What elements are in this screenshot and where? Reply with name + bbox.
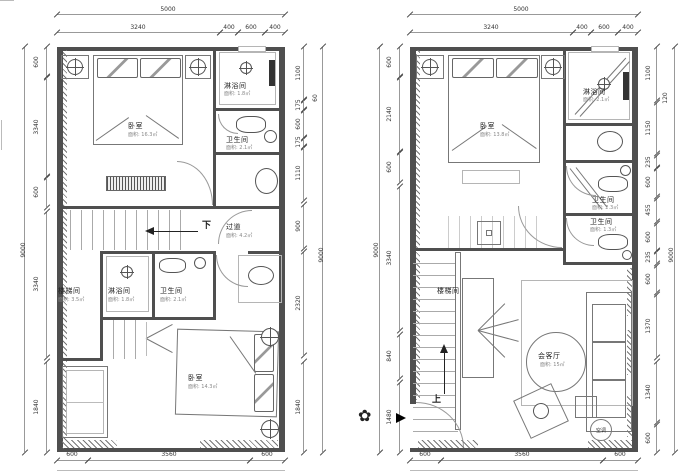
dim-label: 5000: [151, 6, 185, 14]
sofa-cushion: [592, 304, 626, 342]
dim-label: 600: [408, 451, 442, 459]
room-label-shower: 淋浴间: [108, 287, 131, 295]
floorplan-canvas: 5000 3240 400 600 400 600 3560 600 600 3…: [0, 0, 694, 473]
dim-line: [238, 32, 265, 33]
wall: [100, 251, 216, 254]
dim-line: [399, 187, 400, 330]
ceiling-lamp-icon: [190, 59, 206, 75]
dim-label: 5000: [504, 6, 538, 14]
dim-line: [591, 32, 618, 33]
room-label-shower: 淋浴间: [224, 82, 247, 90]
dim-line: [46, 177, 47, 207]
wall-hatch: [627, 268, 632, 316]
dim-line: [303, 205, 304, 248]
dim-line: [656, 224, 657, 251]
pillow: [140, 58, 181, 78]
dim-line: [656, 362, 657, 422]
dim-label: 1100: [645, 56, 653, 90]
room-area: 面积: 2.1㎡: [226, 145, 252, 151]
dim-line: [441, 460, 603, 461]
dim-label: 1480: [386, 400, 394, 434]
dim-label: 2140: [386, 97, 394, 131]
door-arc: [218, 114, 238, 134]
room-label-bath: 卫生间: [592, 196, 615, 204]
dim-line: [250, 460, 285, 461]
room-area: 面积: 1.8㎡: [224, 91, 250, 97]
label-up: 上: [432, 396, 442, 404]
toilet: [159, 258, 186, 273]
wall: [410, 448, 638, 452]
dim-line: [303, 47, 304, 100]
crop-mark: [1, 120, 2, 150]
dim-line: [410, 470, 638, 471]
dim-line: [656, 168, 657, 196]
dim-label: 900: [295, 209, 303, 243]
toilet: [598, 176, 628, 192]
dim-label: 3340: [33, 110, 41, 144]
dim-line: [656, 47, 657, 100]
dim-label: 600: [645, 262, 653, 296]
wall-hatch: [200, 440, 278, 448]
ceiling-lamp-icon: [545, 59, 561, 75]
dim-label: 9000: [20, 233, 28, 267]
ceiling-lamp-icon: [422, 59, 438, 75]
winder-line: [146, 338, 173, 353]
dim-label: 600: [250, 451, 284, 459]
pillow: [97, 58, 138, 78]
dim-line: [399, 152, 400, 182]
shower-room-outline: [219, 52, 276, 105]
side-table: [575, 396, 597, 418]
winder-edge: [146, 322, 147, 356]
dim-label: 600: [33, 175, 41, 209]
wall: [213, 47, 216, 209]
door-arc: [216, 255, 248, 287]
dim-label: 1150: [645, 111, 653, 145]
wall: [57, 358, 102, 361]
dim-line: [46, 212, 47, 357]
toilet: [236, 116, 266, 133]
armchair-cushion: [530, 400, 551, 421]
dim-label: 60: [312, 81, 320, 115]
dim-line: [303, 147, 304, 200]
room-label-bedroom: 卧室: [480, 122, 495, 130]
dim-line: [303, 362, 304, 452]
dim-label: 1340: [645, 375, 653, 409]
dim-line: [303, 252, 304, 355]
dim-label: 840: [386, 339, 394, 373]
stair-rail: [455, 252, 461, 430]
dim-line: [656, 425, 657, 452]
ceiling-lamp-icon: [261, 328, 279, 346]
basin: [264, 130, 277, 143]
room-area: 面积: 2.3㎡: [592, 205, 618, 211]
dim-line: [656, 295, 657, 357]
wall: [213, 108, 285, 111]
shower-head-icon: [240, 62, 252, 74]
dim-line: [410, 32, 573, 33]
wall: [248, 251, 285, 254]
entrance-plant-icon: ✿: [358, 406, 371, 425]
wall: [563, 160, 635, 163]
dim-label: 9000: [373, 233, 381, 267]
dim-line: [656, 199, 657, 221]
dim-line: [618, 32, 638, 33]
sofa-cushion: [592, 380, 626, 418]
dim-line: [410, 14, 638, 15]
dim-label: 9000: [318, 238, 326, 272]
ac-unit: 空调: [590, 419, 612, 441]
wall-hatch: [588, 440, 632, 448]
stair-treads: [70, 210, 188, 250]
winder-line: [146, 324, 173, 339]
dim-line: [303, 110, 304, 138]
dim-label: 3340: [386, 241, 394, 275]
room-area: 面积: 2.1㎡: [160, 297, 186, 303]
dim-label: 175: [295, 125, 303, 159]
basin-oval: [255, 168, 278, 194]
dim-line: [57, 470, 285, 471]
direction-arrow: [145, 227, 154, 235]
dim-label: 1110: [295, 156, 303, 190]
room-label-stair: 楼梯间: [58, 287, 81, 295]
dim-line: [656, 251, 657, 263]
dim-line: [57, 14, 285, 15]
entrance-arrow-icon: [396, 413, 406, 423]
dim-label: 3560: [152, 451, 186, 459]
dim-label: 600: [55, 451, 89, 459]
ceiling-lamp-icon: [67, 59, 83, 75]
room-label-bedroom: 卧室: [128, 122, 143, 130]
dim-line: [603, 460, 638, 461]
shower-niche: [623, 72, 629, 100]
wall: [213, 251, 216, 319]
basin: [194, 257, 206, 269]
winder-stairs: [113, 320, 145, 359]
basin-oval: [248, 266, 274, 285]
bed-bench: [462, 170, 520, 184]
wall: [410, 248, 566, 251]
room-area: 面积: 13.8㎡: [480, 132, 509, 138]
dim-label: 600: [645, 421, 653, 455]
dim-label: 1840: [295, 390, 303, 424]
door-arc: [218, 210, 252, 244]
dim-line: [46, 77, 47, 177]
room-area: 面积: 2.1㎡: [583, 97, 609, 103]
dim-label: 1370: [645, 309, 653, 343]
room-area: 面积: 3.5㎡: [58, 297, 84, 303]
ceiling-lamp-icon: [261, 420, 279, 438]
room-label-shower: 淋浴间: [583, 88, 606, 96]
direction-arrow: [440, 344, 448, 353]
room-area: 面积: 15㎡: [540, 362, 565, 368]
landing-table-inner: [486, 230, 492, 236]
pillow: [452, 58, 494, 78]
dim-label: 600: [386, 45, 394, 79]
door-arc: [566, 218, 594, 246]
room-label-bedroom: 卧室: [188, 374, 203, 382]
dim-label: 9000: [668, 238, 676, 272]
dim-label: 400: [258, 24, 292, 32]
dim-label: 400: [611, 24, 645, 32]
direction-line: [444, 352, 445, 394]
room-label-bath: 卫生间: [160, 287, 183, 295]
basin-oval: [597, 131, 623, 152]
dim-label: 600: [386, 150, 394, 184]
radiator: [106, 176, 166, 191]
dim-line: [265, 32, 285, 33]
dim-label: 1840: [33, 390, 41, 424]
room-label-stair: 楼梯间: [437, 287, 460, 295]
wall: [563, 47, 566, 265]
room-label-living: 会客厅: [538, 352, 561, 360]
dim-label: 3340: [33, 267, 41, 301]
room-area: 面积: 16.3㎡: [128, 132, 157, 138]
dim-label: 2320: [295, 286, 303, 320]
toilet: [598, 234, 628, 250]
dim-line: [46, 47, 47, 77]
direction-line: [152, 231, 198, 232]
wall: [100, 251, 103, 361]
wall: [563, 262, 635, 265]
dim-label: 120: [662, 81, 670, 115]
label-down: 下: [202, 222, 212, 230]
shower-niche: [269, 60, 275, 86]
wardrobe-shelf: [66, 402, 104, 403]
wall-hatch: [62, 440, 117, 448]
dim-label: 3240: [121, 24, 155, 32]
basin: [620, 165, 631, 176]
door-arc: [177, 161, 213, 205]
sofa-cushion: [592, 342, 626, 380]
wall: [213, 152, 285, 155]
dim-label: 1100: [295, 56, 303, 90]
wall-hatch: [418, 440, 478, 448]
pillow: [496, 58, 538, 78]
dim-line: [410, 460, 441, 461]
dim-line: [656, 266, 657, 292]
wall: [57, 448, 285, 452]
dim-line: [399, 335, 400, 378]
wall: [563, 123, 635, 126]
dim-label: 3560: [505, 451, 539, 459]
pillow: [254, 374, 274, 412]
door-arc: [566, 166, 596, 196]
dim-line: [57, 460, 88, 461]
dim-label: 600: [603, 451, 637, 459]
shower-head-icon: [121, 266, 133, 278]
room-area: 面积: 14.3㎡: [188, 384, 217, 390]
wall: [152, 251, 155, 319]
room-area: 面积: 1.8㎡: [108, 297, 134, 303]
wall-hatch: [627, 330, 632, 375]
dim-line: [656, 103, 657, 153]
dim-line: [399, 77, 400, 152]
wall: [563, 213, 635, 216]
dim-label: 3240: [474, 24, 508, 32]
dim-label: 600: [33, 45, 41, 79]
dim-line: [46, 362, 47, 452]
room-label-bath: 卫生间: [226, 136, 249, 144]
dim-line: [399, 47, 400, 77]
basin: [622, 250, 632, 260]
crop-mark: [0, 0, 14, 1]
wall-hatch: [627, 395, 632, 437]
dim-line: [57, 32, 220, 33]
dim-line: [88, 460, 250, 461]
wall: [57, 206, 285, 209]
